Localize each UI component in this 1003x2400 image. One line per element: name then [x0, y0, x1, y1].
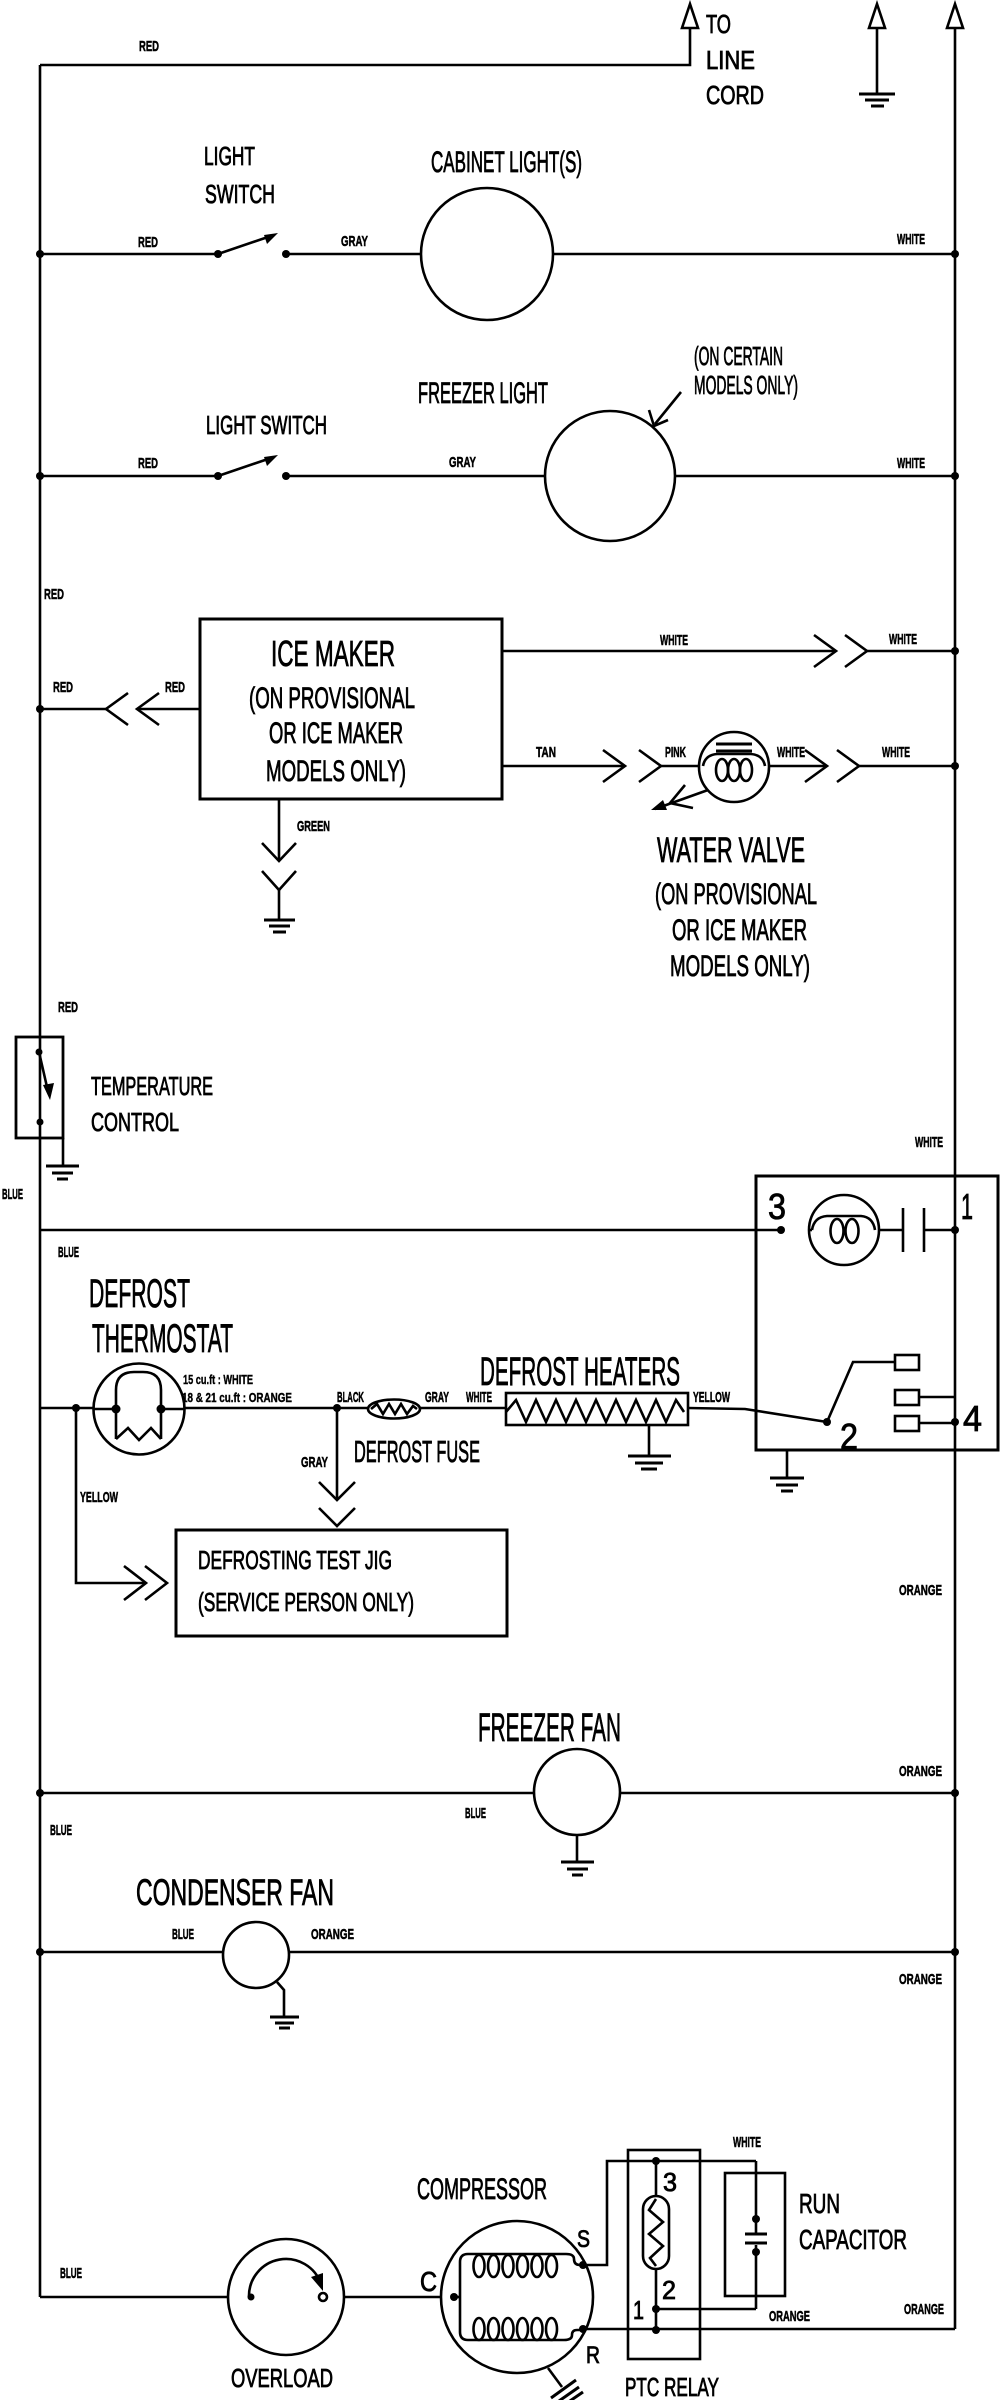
svg-text:WHITE: WHITE: [660, 632, 688, 649]
svg-text:CONTROL: CONTROL: [91, 1107, 179, 1137]
svg-text:DEFROSTING TEST JIG: DEFROSTING TEST JIG: [198, 1545, 392, 1575]
svg-text:WHITE: WHITE: [915, 1134, 943, 1151]
svg-text:GRAY: GRAY: [425, 1389, 449, 1406]
svg-text:ORANGE: ORANGE: [904, 2301, 944, 2318]
svg-text:GRAY: GRAY: [449, 454, 476, 471]
svg-text:R: R: [586, 2342, 600, 2369]
svg-text:RED: RED: [165, 679, 185, 696]
svg-text:MODELS ONLY): MODELS ONLY): [694, 370, 798, 400]
svg-text:BLUE: BLUE: [50, 1822, 72, 1839]
svg-text:ORANGE: ORANGE: [769, 2308, 810, 2325]
svg-text:S: S: [577, 2226, 590, 2253]
svg-text:(ON PROVISIONAL: (ON PROVISIONAL: [655, 878, 817, 911]
svg-text:WHITE: WHITE: [777, 744, 805, 761]
svg-text:MODELS ONLY): MODELS ONLY): [266, 755, 406, 788]
svg-text:MODELS ONLY): MODELS ONLY): [670, 950, 810, 983]
svg-text:18 & 21 cu.ft : ORANGE: 18 & 21 cu.ft : ORANGE: [182, 1390, 292, 1405]
svg-text:RUN: RUN: [799, 2188, 840, 2219]
svg-text:DEFROST FUSE: DEFROST FUSE: [354, 1434, 480, 1469]
svg-text:C: C: [420, 2266, 437, 2297]
svg-text:CABINET LIGHT(S): CABINET LIGHT(S): [431, 146, 582, 179]
svg-text:WHITE: WHITE: [897, 231, 925, 248]
svg-text:BLUE: BLUE: [2, 1186, 23, 1203]
svg-text:1: 1: [633, 2295, 644, 2325]
svg-text:CAPACITOR: CAPACITOR: [799, 2224, 907, 2255]
svg-text:4: 4: [963, 1398, 982, 1439]
svg-text:BLUE: BLUE: [465, 1805, 486, 1822]
svg-text:3: 3: [663, 2167, 677, 2197]
svg-text:ORANGE: ORANGE: [311, 1926, 354, 1943]
svg-text:ORANGE: ORANGE: [899, 1971, 942, 1988]
svg-text:ICE MAKER: ICE MAKER: [271, 633, 395, 674]
svg-text:ORANGE: ORANGE: [899, 1582, 942, 1599]
svg-text:GREEN: GREEN: [297, 818, 330, 835]
svg-text:FREEZER LIGHT: FREEZER LIGHT: [418, 377, 548, 410]
svg-text:RED: RED: [138, 455, 158, 472]
svg-text:SWITCH: SWITCH: [205, 179, 275, 209]
svg-text:ORANGE: ORANGE: [899, 1763, 942, 1780]
svg-text:BLACK: BLACK: [337, 1389, 364, 1406]
svg-text:WATER VALVE: WATER VALVE: [657, 831, 805, 870]
svg-text:(SERVICE PERSON ONLY): (SERVICE PERSON ONLY): [198, 1587, 414, 1617]
svg-text:(ON PROVISIONAL: (ON PROVISIONAL: [249, 682, 415, 715]
svg-text:YELLOW: YELLOW: [693, 1389, 730, 1406]
svg-text:LINE: LINE: [706, 45, 755, 75]
svg-text:2: 2: [840, 1416, 858, 1457]
svg-text:BLUE: BLUE: [58, 1244, 79, 1261]
svg-text:OR ICE MAKER: OR ICE MAKER: [672, 914, 807, 947]
svg-text:2: 2: [662, 2275, 676, 2305]
svg-text:OR ICE MAKER: OR ICE MAKER: [269, 717, 403, 750]
svg-text:WHITE: WHITE: [889, 631, 917, 648]
svg-text:WHITE: WHITE: [897, 455, 925, 472]
svg-text:RED: RED: [139, 38, 159, 55]
svg-text:PINK: PINK: [665, 744, 686, 761]
svg-text:TEMPERATURE: TEMPERATURE: [91, 1071, 213, 1101]
svg-text:WHITE: WHITE: [733, 2134, 761, 2151]
svg-text:TAN: TAN: [536, 744, 556, 761]
svg-text:1: 1: [961, 1186, 973, 1227]
svg-text:LIGHT SWITCH: LIGHT SWITCH: [206, 410, 327, 440]
svg-text:BLUE: BLUE: [60, 2265, 82, 2282]
svg-text:LIGHT: LIGHT: [204, 141, 255, 171]
svg-text:OVERLOAD: OVERLOAD: [231, 2363, 333, 2393]
svg-text:3: 3: [768, 1186, 786, 1227]
svg-text:FREEZER FAN: FREEZER FAN: [478, 1706, 621, 1750]
svg-text:PTC RELAY: PTC RELAY: [625, 2372, 719, 2400]
svg-text:DEFROST: DEFROST: [89, 1272, 190, 1316]
svg-text:RED: RED: [58, 999, 78, 1016]
svg-text:CONDENSER FAN: CONDENSER FAN: [136, 1872, 334, 1913]
svg-text:(ON CERTAIN: (ON CERTAIN: [694, 341, 783, 371]
svg-text:GRAY: GRAY: [301, 1454, 328, 1471]
svg-text:COMPRESSOR: COMPRESSOR: [417, 2173, 547, 2206]
svg-text:YELLOW: YELLOW: [80, 1489, 118, 1506]
svg-text:CORD: CORD: [706, 80, 764, 110]
svg-text:RED: RED: [53, 679, 73, 696]
svg-text:RED: RED: [44, 586, 64, 603]
svg-text:GRAY: GRAY: [341, 233, 368, 250]
svg-text:BLUE: BLUE: [172, 1926, 194, 1943]
svg-text:RED: RED: [138, 234, 158, 251]
svg-text:WHITE: WHITE: [882, 744, 910, 761]
svg-text:DEFROST HEATERS: DEFROST HEATERS: [480, 1350, 680, 1394]
svg-text:15 cu.ft : WHITE: 15 cu.ft : WHITE: [183, 1372, 253, 1387]
svg-text:TO: TO: [706, 9, 731, 39]
svg-text:THERMOSTAT: THERMOSTAT: [92, 1317, 233, 1361]
